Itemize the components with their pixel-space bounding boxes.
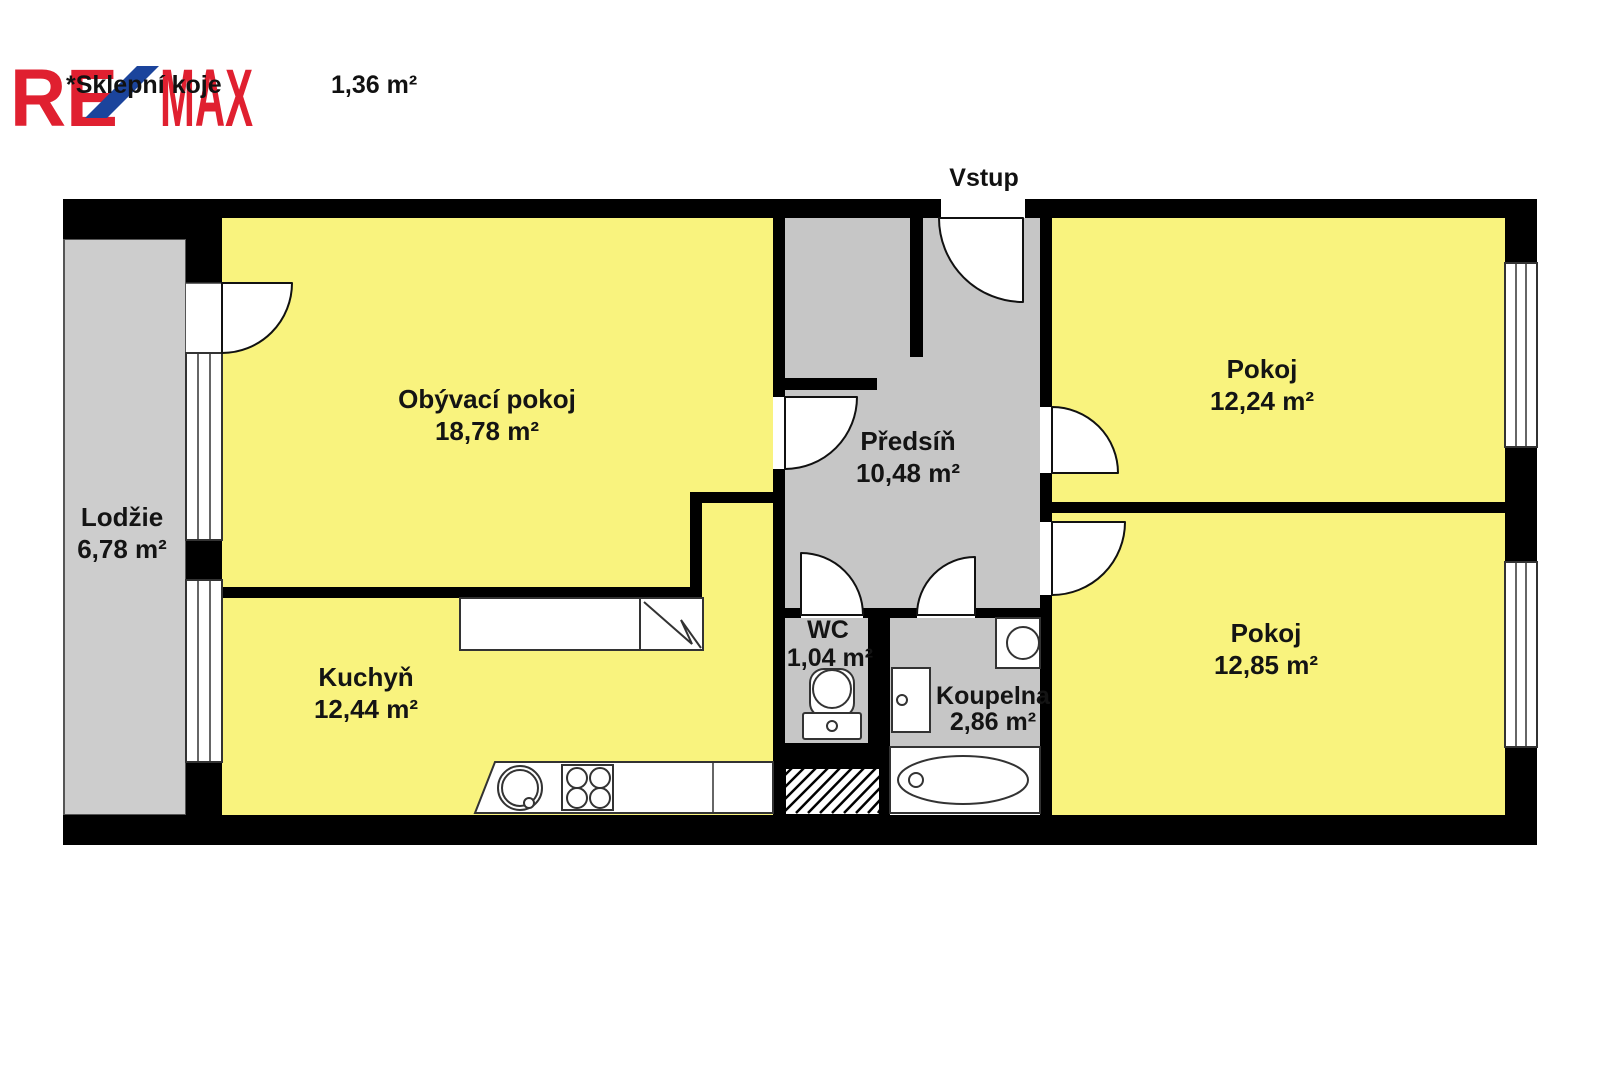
kitchen-label: Kuchyň — [318, 662, 413, 692]
stove-icon — [562, 765, 613, 810]
kitchen-sink-icon — [498, 766, 542, 810]
bathroom-label: Koupelna — [936, 682, 1051, 710]
wall-top — [63, 199, 1537, 218]
bathroom-sink-icon — [892, 668, 930, 732]
room-top-door-opening — [1040, 407, 1052, 473]
wall-hall-stub — [783, 378, 877, 390]
wc-label: WC — [807, 616, 849, 644]
wall-below-wc — [773, 743, 890, 768]
wall-entry-stub — [910, 218, 923, 357]
wall-kitchen-right — [773, 610, 785, 815]
bathtub-icon — [890, 747, 1040, 813]
shaft-hatch-icon — [785, 768, 880, 815]
hallway-area: 10,48 m² — [856, 458, 960, 488]
entrance-label: Vstup — [949, 164, 1018, 192]
window-icon — [1505, 263, 1537, 447]
entrance-opening — [941, 199, 1025, 218]
living-room-label: Obývací pokoj — [398, 384, 576, 414]
wall-shaft-right — [880, 768, 890, 815]
washing-machine-icon — [996, 618, 1040, 668]
window-icon — [186, 353, 222, 540]
window-icon — [186, 580, 222, 762]
loggia-label: Lodžie — [81, 502, 163, 532]
kitchen-area: 12,44 m² — [314, 694, 418, 724]
room-top-area: 12,24 m² — [1210, 386, 1314, 416]
refrigerator-icon — [640, 598, 703, 650]
room-top-label: Pokoj — [1227, 354, 1298, 384]
wc-area: 1,04 m² — [787, 644, 873, 672]
wall-hall-right — [1040, 218, 1052, 815]
wall-wc-bath-divider — [868, 617, 890, 743]
bathroom-area: 2,86 m² — [950, 708, 1036, 736]
wall-living-step — [690, 492, 773, 503]
wall-bottom — [63, 815, 1537, 845]
room-bottom-area: 12,85 m² — [1214, 650, 1318, 680]
wall-left-mid — [186, 540, 222, 580]
cellar-note: *Sklepní koje — [66, 71, 222, 99]
window-icon — [1505, 562, 1537, 747]
hallway-label: Předsíň — [860, 426, 955, 456]
wall-left-corner — [186, 199, 222, 283]
room-bottom-label: Pokoj — [1231, 618, 1302, 648]
wall-rooms-divider — [1052, 502, 1505, 513]
floor-plan-page: Obývací pokoj 18,78 m² Předsíň 10,48 m² … — [0, 0, 1600, 1066]
cellar-note-area: 1,36 m² — [331, 71, 417, 99]
balcony-door-opening — [186, 283, 222, 353]
room-bottom-door-opening — [1040, 522, 1052, 595]
loggia-area: 6,78 m² — [77, 534, 167, 564]
toilet-icon — [803, 669, 861, 739]
wall-kitchen-top — [222, 587, 702, 598]
living-door-opening — [773, 397, 785, 469]
wall-left-bottom — [186, 762, 222, 815]
floor-plan-canvas: Obývací pokoj 18,78 m² Předsíň 10,48 m² … — [0, 0, 1600, 1066]
header: RE MAX *Sklepní koje 1,36 m² Vstup — [10, 53, 1019, 192]
wall-step-vertical — [690, 492, 702, 598]
living-room-area: 18,78 m² — [435, 416, 539, 446]
